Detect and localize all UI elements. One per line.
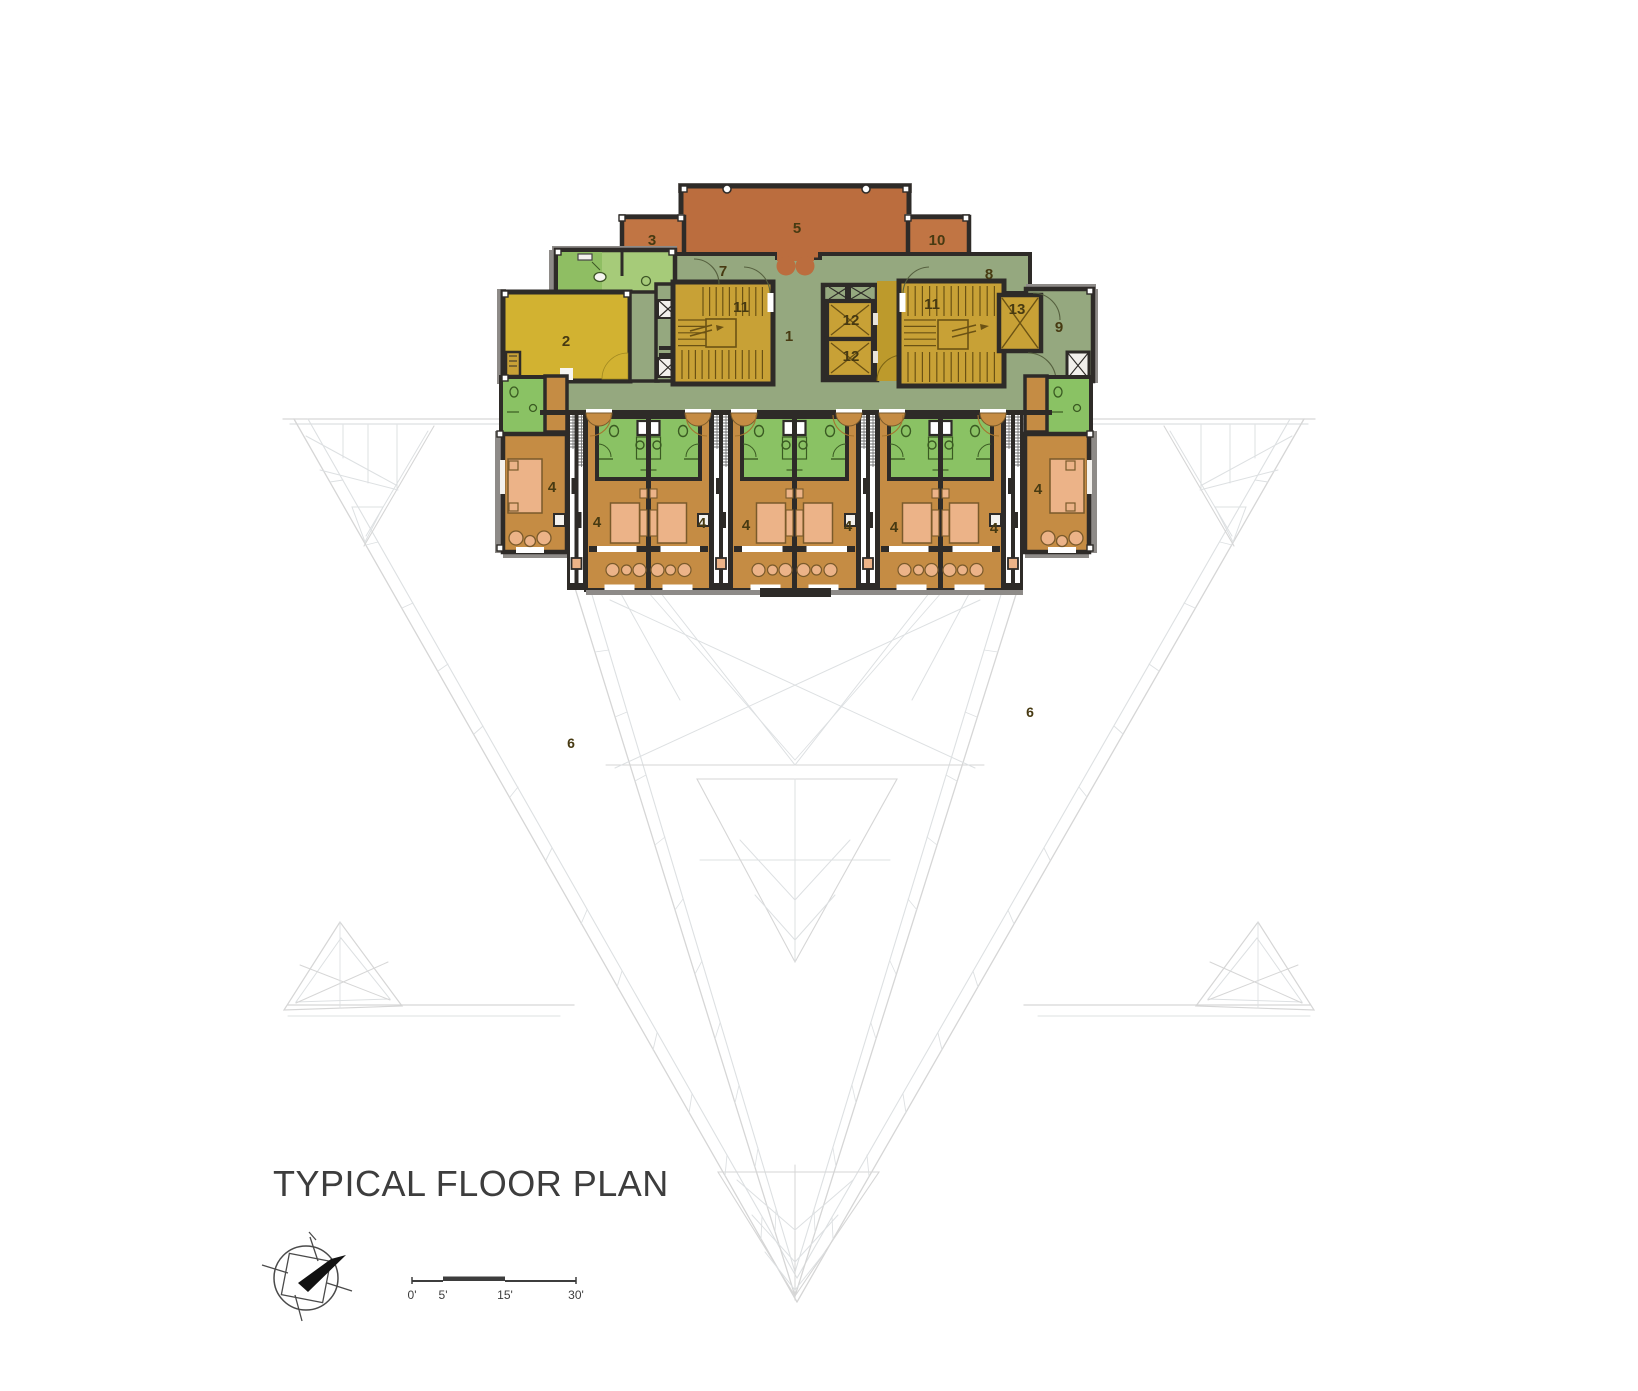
svg-text:4: 4: [698, 515, 707, 532]
svg-text:4: 4: [890, 519, 899, 536]
svg-text:7: 7: [719, 263, 727, 280]
svg-text:10: 10: [929, 232, 946, 249]
svg-text:5: 5: [793, 220, 801, 237]
svg-text:15': 15': [497, 1288, 513, 1302]
svg-text:2: 2: [562, 333, 570, 350]
svg-text:6: 6: [567, 735, 575, 751]
svg-text:11: 11: [924, 296, 940, 313]
svg-text:TYPICAL FLOOR PLAN: TYPICAL FLOOR PLAN: [273, 1163, 669, 1204]
svg-text:4: 4: [548, 479, 557, 496]
svg-text:12: 12: [843, 348, 860, 365]
svg-text:6: 6: [1026, 704, 1034, 720]
svg-text:8: 8: [985, 266, 993, 283]
svg-text:4: 4: [593, 514, 602, 531]
svg-text:9: 9: [1055, 319, 1063, 336]
svg-text:5': 5': [439, 1288, 448, 1302]
svg-text:0': 0': [408, 1288, 417, 1302]
svg-text:13: 13: [1009, 301, 1026, 318]
svg-text:12: 12: [843, 312, 860, 329]
svg-text:11: 11: [733, 299, 749, 316]
svg-text:4: 4: [1034, 481, 1043, 498]
svg-text:1: 1: [785, 328, 793, 345]
svg-text:3: 3: [648, 232, 656, 249]
svg-text:4: 4: [844, 518, 853, 535]
svg-text:30': 30': [568, 1288, 584, 1302]
svg-text:4: 4: [990, 520, 999, 537]
svg-text:4: 4: [742, 517, 751, 534]
